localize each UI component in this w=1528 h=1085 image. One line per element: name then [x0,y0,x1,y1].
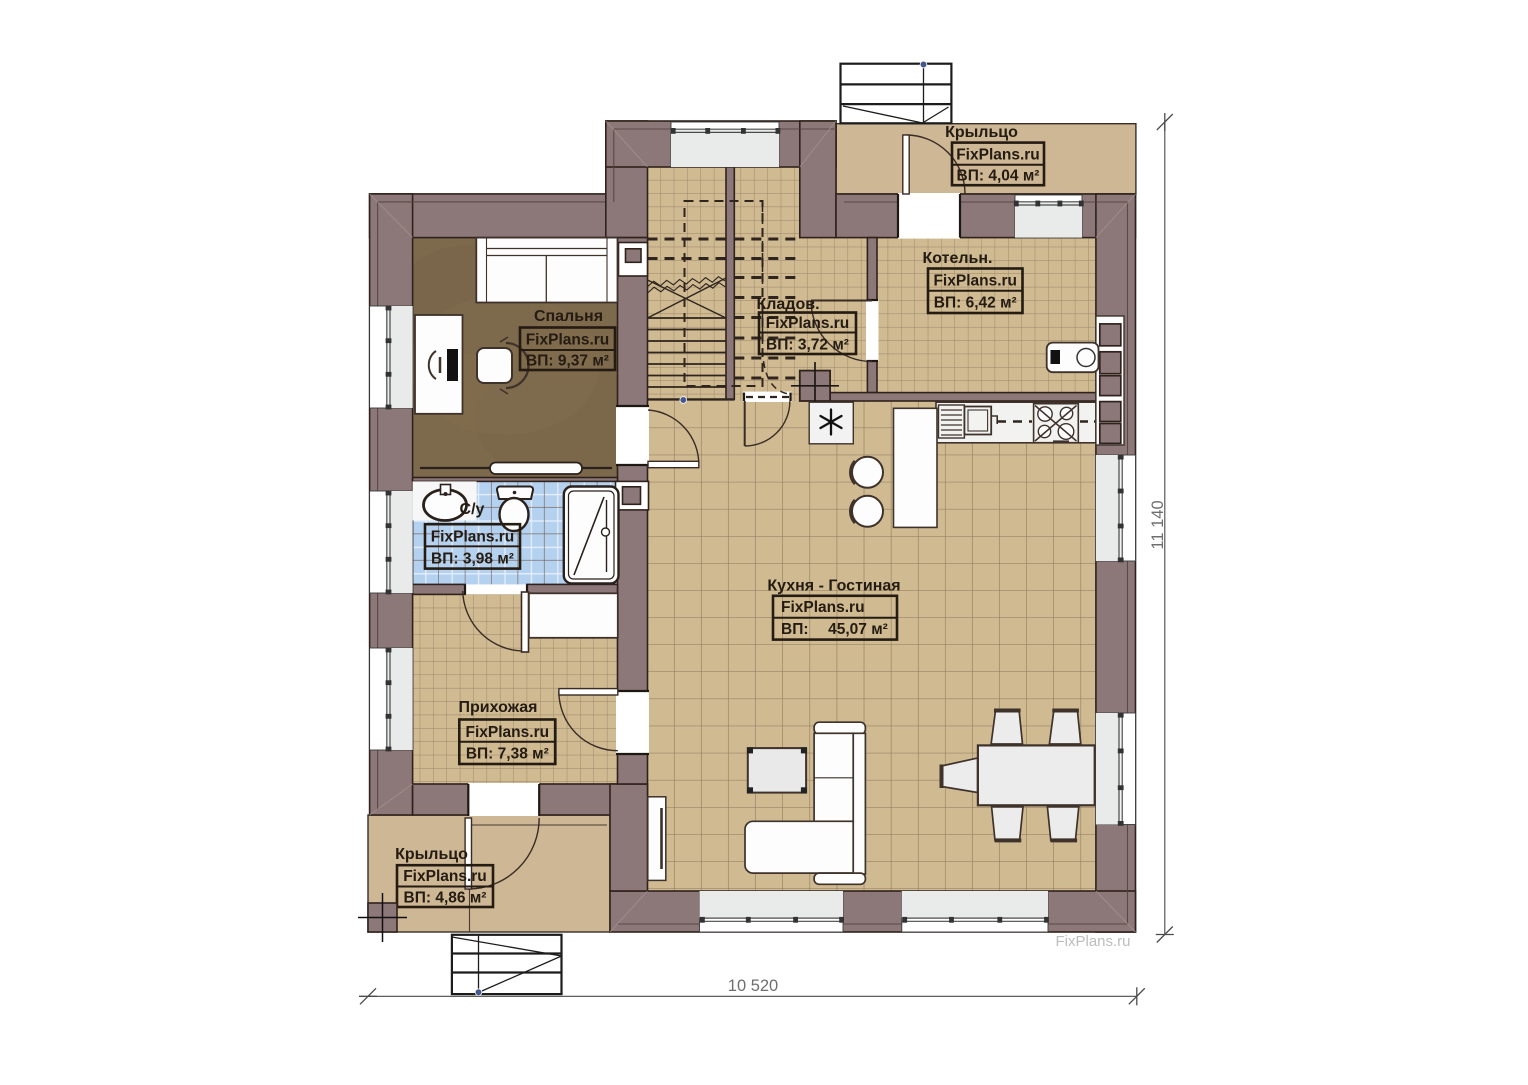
svg-text:10 520: 10 520 [728,977,778,995]
svg-text:ВП: 6,42 м²: ВП: 6,42 м² [934,295,1017,312]
svg-text:Кухня - Гостиная: Кухня - Гостиная [767,578,900,595]
svg-text:ВП: 7,38 м²: ВП: 7,38 м² [466,746,549,763]
svg-text:ВП:: ВП: [781,621,809,638]
svg-text:11 140: 11 140 [1149,500,1167,549]
svg-text:ВП: 9,37 м²: ВП: 9,37 м² [526,353,609,370]
svg-text:Крыльцо: Крыльцо [945,124,1018,141]
svg-text:Котельн.: Котельн. [923,250,993,267]
svg-text:Прихожая: Прихожая [459,699,538,716]
svg-text:FixPlans.ru: FixPlans.ru [933,273,1017,290]
svg-text:FixPlans.ru: FixPlans.ru [466,724,550,741]
svg-text:FixPlans.ru: FixPlans.ru [403,868,487,885]
svg-text:ВП: 4,86 м²: ВП: 4,86 м² [404,890,487,907]
svg-text:С/у: С/у [460,501,485,518]
svg-text:Крыльцо: Крыльцо [395,846,468,863]
svg-text:FixPlans.ru: FixPlans.ru [1055,933,1130,950]
svg-text:FixPlans.ru: FixPlans.ru [526,332,610,349]
svg-text:ВП: 3,72 м²: ВП: 3,72 м² [766,337,849,354]
svg-text:Кладов.: Кладов. [756,296,819,313]
svg-text:FixPlans.ru: FixPlans.ru [766,315,850,332]
svg-text:FixPlans.ru: FixPlans.ru [956,147,1040,164]
svg-text:Спальня: Спальня [534,308,603,325]
svg-text:ВП: 3,98 м²: ВП: 3,98 м² [431,551,514,568]
svg-text:FixPlans.ru: FixPlans.ru [431,529,515,546]
svg-text:ВП: 4,04 м²: ВП: 4,04 м² [957,168,1040,185]
svg-text:45,07 м²: 45,07 м² [828,621,888,638]
svg-text:FixPlans.ru: FixPlans.ru [781,599,865,616]
